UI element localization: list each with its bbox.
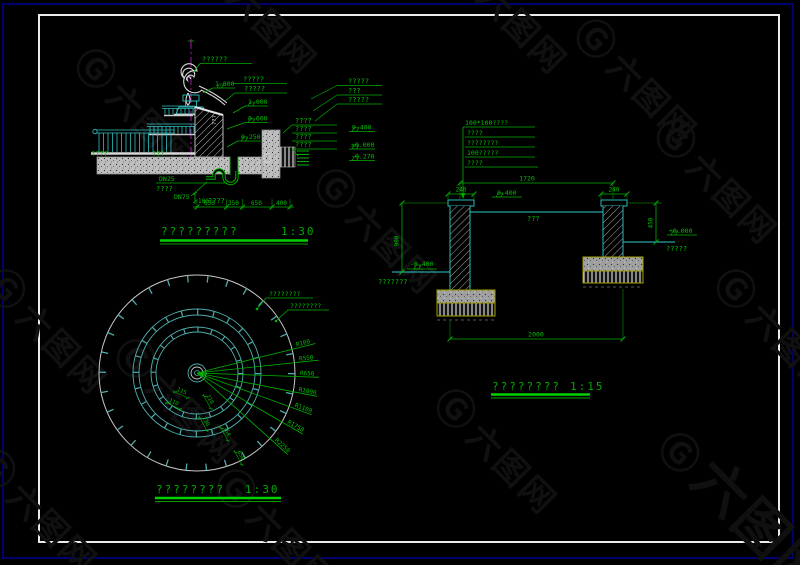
drawing2-title: ???????? 1:30: [155, 483, 281, 502]
basin-label: ???: [152, 150, 165, 158]
dim-span-bottom-value: 2000: [528, 331, 544, 339]
dim-coping-left-value: 240: [456, 187, 467, 194]
elevation-mid-value: 0.600: [248, 115, 268, 123]
pool-note-4: 100?????: [467, 149, 498, 157]
drawing2-title-scale: 1:30: [245, 483, 280, 496]
pool-note-2: ????: [467, 129, 483, 137]
plan-leader-1: ????????: [269, 290, 300, 298]
leader-top: ??????: [193, 56, 252, 74]
pool-right-label: ?????: [666, 245, 687, 253]
drawing1-title: ????????? 1:30: [160, 225, 316, 244]
radius-label-6: R1750: [286, 419, 305, 434]
note-b1: ????: [295, 117, 312, 125]
radius-label-5: R1100: [294, 402, 314, 415]
dim-coping-left: 240: [446, 187, 477, 201]
elevation-tier-value: 1.000: [248, 98, 268, 106]
chain-dim-3: 650: [251, 200, 262, 207]
plan-small-dims: 115 110 210 230 364 650: [164, 386, 247, 467]
dimension-chain: 650 350 650 400: [193, 199, 294, 210]
fountain-section-drawing: ?????? 1.800 ????? ????? 1.000 0.600: [55, 25, 405, 260]
elevation-ground-left: -0.400: [407, 260, 437, 269]
dim-height-right-value: 450: [648, 217, 655, 228]
elevation-tier: 1.000: [233, 98, 268, 113]
column-label: ???: [212, 115, 218, 125]
dim-span-top-value: 1720: [519, 175, 535, 183]
note-a1: ?????: [348, 78, 369, 86]
dim-coping-right-value: 240: [609, 187, 620, 194]
chain-dim-1: 650: [204, 200, 215, 207]
note-a2: ???: [348, 87, 361, 95]
dn25-note: ????: [156, 185, 173, 193]
elevation-deck-value: 0.400: [352, 124, 372, 132]
pool-note-1: 100*100????: [465, 119, 508, 127]
basin-tiers: [91, 106, 197, 154]
plan-leaders: ???????? ????????: [256, 290, 329, 322]
drawing3-title-scale: 1:15: [570, 380, 605, 393]
right-wall: [583, 200, 643, 287]
elevation-ground-right: +0.000: [667, 227, 697, 235]
chain-dim-2: 350: [228, 200, 239, 207]
drawing2-title-label: ????????: [156, 483, 225, 496]
dim-height-right: 450: [628, 201, 662, 245]
elevation-water: 0.400: [492, 189, 522, 197]
pool-note-3: ????????: [467, 139, 498, 147]
drawing1-title-label: ?????????: [161, 225, 239, 238]
dn25-callout: DN25 ????: [156, 175, 227, 193]
plan-leader-2: ????????: [290, 302, 321, 310]
dim-span-top: 1720: [458, 175, 616, 200]
chain-dim-4: 400: [276, 200, 287, 207]
pool-center-label: ???: [527, 215, 540, 223]
radius-label-3: R650: [300, 370, 315, 378]
dn75-label: DN75: [174, 193, 190, 201]
cad-canvas: Ⓖ六图网 Ⓖ六图网 Ⓖ六图网 Ⓖ六图网 Ⓖ六图网 Ⓖ六图网 Ⓖ六图网 Ⓖ六图网 …: [0, 0, 800, 565]
drawing3-title: ???????? 1:15: [491, 380, 605, 398]
elevation-low-value: 0.250: [241, 133, 261, 141]
radius-label-7: R2250: [273, 437, 291, 455]
pool-note-5: ????: [467, 159, 483, 167]
radius-label-1: R100: [295, 338, 311, 348]
drawing3-title-label: ????????: [492, 380, 561, 393]
elevation-low: 0.250: [227, 133, 261, 147]
dim-height-left-value: 900: [394, 235, 401, 246]
elevation-ground-right-value: +0.000: [669, 227, 693, 235]
radius-lines: R100 R550 R650 R1000 R1100 R1750 R2250: [197, 338, 319, 454]
leader-top-label: ??????: [202, 56, 227, 64]
elevation-mid: 0.600: [227, 115, 268, 130]
dim-coping-right: 240: [599, 187, 630, 201]
fountain-plan-drawing: R100 R550 R650 R1000 R1100 R1750 R2250 1…: [85, 265, 335, 505]
note-a3: ?????: [348, 96, 369, 104]
dn25-label: DN25: [159, 175, 175, 183]
left-wall: [437, 200, 495, 320]
note-b3: ????: [295, 133, 312, 141]
left-row-label: ????: [91, 150, 108, 158]
elevation-spout: 1.800: [203, 80, 235, 93]
note-b2: ????: [295, 125, 312, 133]
radius-label-2: R550: [299, 354, 314, 363]
radius-label-4: R1000: [298, 386, 317, 396]
drawing1-title-scale: 1:30: [281, 225, 316, 238]
note-stack: 100*100???? ???? ???????? 100????? ????: [461, 119, 538, 199]
upper-pair-label-2: ?????: [244, 85, 265, 93]
core-column: [195, 107, 223, 157]
elevation-ground-left-value: -0.400: [410, 260, 434, 268]
elevation-spout-value: 1.800: [215, 80, 235, 88]
pool-wall-section-drawing: ??? 0.400 -0.400 ??????? +0.000 ????? 10…: [370, 95, 700, 405]
pool-left-label: ???????: [378, 278, 408, 286]
note-b4: ????: [295, 141, 312, 149]
upper-pair-label-1: ?????: [243, 76, 264, 84]
elevation-water-value: 0.400: [497, 189, 517, 197]
